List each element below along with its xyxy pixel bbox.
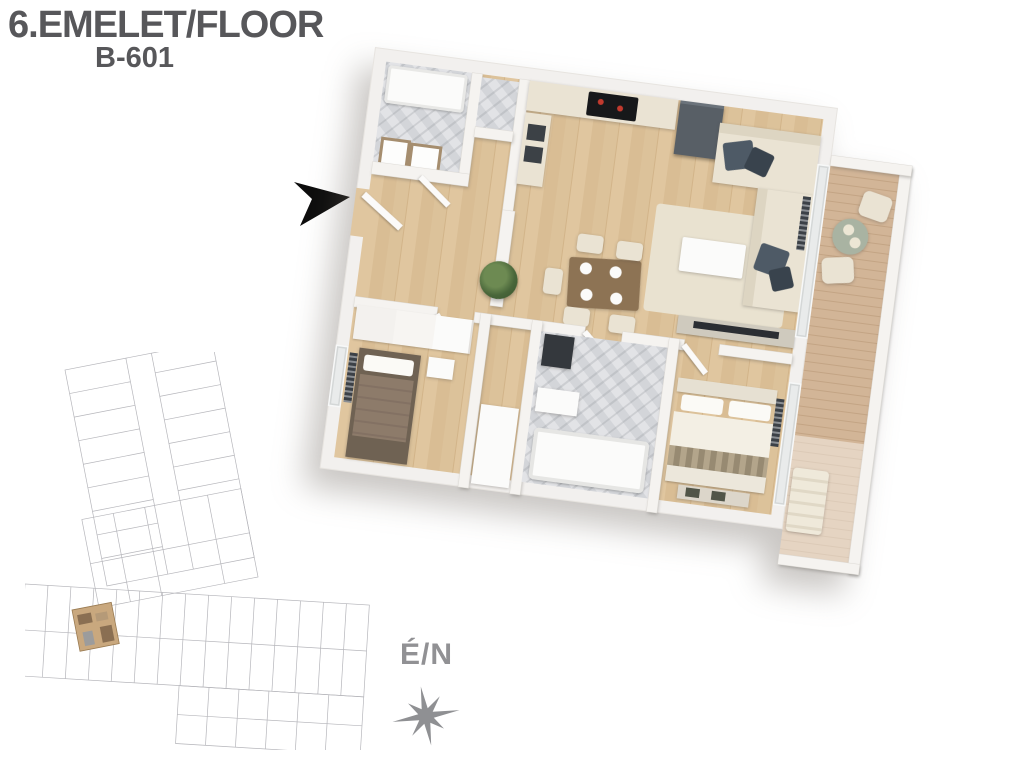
floorplan-sheet: 6.EMELET/FLOOR B-601 (0, 0, 1013, 760)
closet-floor (475, 77, 519, 132)
microwave (523, 145, 543, 163)
page-title: 6.EMELET/FLOOR (8, 4, 323, 47)
entrance-arrow-icon (292, 170, 354, 228)
apartment-outer-walls (320, 47, 838, 529)
sofa-pillow-4 (768, 266, 794, 292)
dining-chair-5 (542, 267, 563, 295)
washing-machine (541, 334, 575, 370)
compass-rose-icon (388, 676, 466, 756)
bench-tray-1 (685, 487, 700, 498)
patio-chair-2 (821, 257, 854, 284)
bench-tray-2 (711, 491, 726, 502)
dining-chair-2 (615, 240, 643, 261)
oven (526, 124, 546, 142)
dining-chair-1 (576, 233, 604, 254)
building-site-plan (25, 352, 377, 750)
dining-table (567, 257, 642, 311)
apartment-floorplan (314, 47, 923, 585)
nightstand (426, 357, 454, 380)
site-plan-unit-highlight (72, 602, 119, 651)
unit-code: B-601 (95, 42, 174, 75)
site-wing-upper (53, 352, 258, 608)
compass-label: É/N (400, 638, 453, 672)
